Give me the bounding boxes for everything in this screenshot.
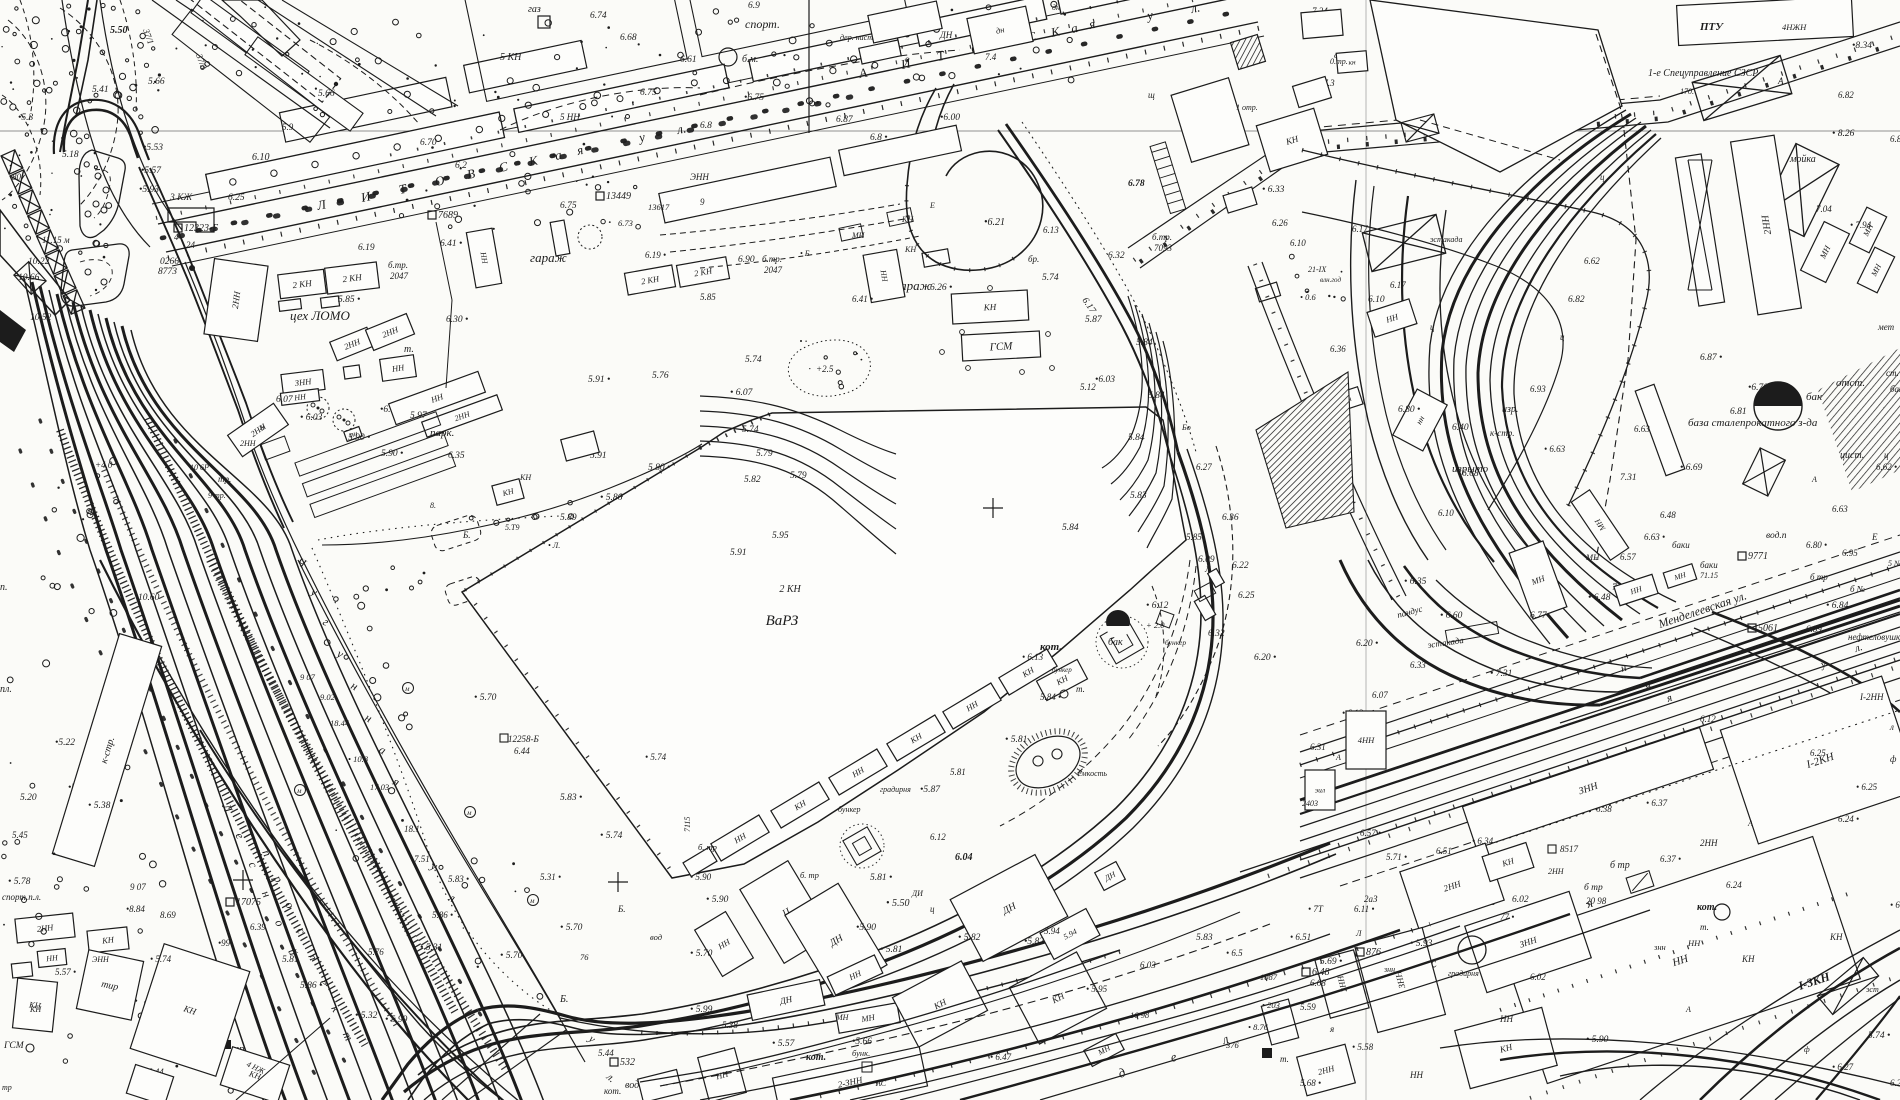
svg-text:Л: Л xyxy=(1355,929,1362,938)
svg-text:13449: 13449 xyxy=(606,191,631,202)
svg-text:тр: тр xyxy=(2,1083,12,1092)
svg-text:6.20 •: 6.20 • xyxy=(1254,653,1276,663)
svg-text:2047: 2047 xyxy=(764,265,783,275)
svg-text:2047: 2047 xyxy=(390,271,409,281)
svg-text:изр.: изр. xyxy=(1502,404,1518,415)
svg-text:10 6Р: 10 6Р xyxy=(190,463,209,472)
svg-text:баки: баки xyxy=(1672,540,1690,550)
svg-text:кот.: кот. xyxy=(806,1052,826,1063)
svg-text:б тр: б тр xyxy=(1810,572,1828,582)
svg-text:м: м xyxy=(529,897,535,905)
svg-text:• 5.82: • 5.82 xyxy=(958,933,981,943)
svg-text:6.10: 6.10 xyxy=(252,152,270,163)
svg-text:• 5.70: • 5.70 xyxy=(474,693,497,703)
svg-text:спорт.: спорт. xyxy=(745,17,780,31)
svg-text:6.75: 6.75 xyxy=(640,88,657,98)
svg-text:6.04: 6.04 xyxy=(955,852,973,863)
svg-text:• 5.70: • 5.70 xyxy=(500,951,523,961)
svg-text:12258-Б: 12258-Б xyxy=(508,734,539,744)
svg-text:12323-Б: 12323-Б xyxy=(184,223,218,234)
svg-text:5.68 •: 5.68 • xyxy=(1300,1078,1321,1088)
svg-text:А: А xyxy=(1747,819,1753,828)
svg-text:8.69: 8.69 xyxy=(160,910,176,920)
svg-text:6.78: 6.78 xyxy=(1128,179,1145,189)
svg-text:• 5.70: • 5.70 xyxy=(560,923,583,933)
svg-text:6.82: 6.82 xyxy=(1838,90,1854,100)
svg-text:6.26 •: 6.26 • xyxy=(930,283,952,293)
svg-text:• 7.94: • 7.94 xyxy=(1850,220,1872,230)
svg-text:6.87 •: 6.87 • xyxy=(1700,353,1722,363)
svg-text:• 6.63: • 6.63 xyxy=(1544,444,1566,454)
svg-text:17075: 17075 xyxy=(236,897,261,908)
svg-text:6.57 •: 6.57 • xyxy=(1360,828,1381,838)
svg-text:5.91: 5.91 xyxy=(730,548,747,558)
svg-text:5.18: 5.18 xyxy=(62,150,79,160)
svg-text:н: н xyxy=(260,422,265,432)
svg-text:база сталепрокатного з-да: база сталепрокатного з-да xyxy=(1688,417,1818,429)
svg-text:6.31: 6.31 xyxy=(1310,742,1326,752)
svg-text:б тр: б тр xyxy=(1584,882,1603,893)
svg-text:ц: ц xyxy=(930,904,935,914)
svg-text:7093: 7093 xyxy=(1154,243,1173,253)
svg-text:•5.3: •5.3 xyxy=(18,113,33,123)
svg-text:5.79: 5.79 xyxy=(756,449,773,459)
svg-text:18.44: 18.44 xyxy=(330,718,350,728)
svg-text:•8.34: •8.34 xyxy=(1852,41,1872,51)
svg-text:м: м xyxy=(404,685,410,693)
svg-text:5.91 •: 5.91 • xyxy=(588,375,610,385)
svg-text:НН: НН xyxy=(390,362,405,374)
svg-text:• 6.69: • 6.69 xyxy=(1680,463,1703,473)
svg-text:9 тр.: 9 тр. xyxy=(208,491,226,500)
svg-text:5 №: 5 № xyxy=(1888,559,1900,568)
svg-text:эстакада: эстакада xyxy=(1430,235,1462,244)
svg-text:• 5.90: • 5.90 xyxy=(706,895,729,905)
svg-text:• 0.6: • 0.6 xyxy=(1300,292,1316,302)
svg-text:6.22: 6.22 xyxy=(1232,561,1249,571)
svg-text:• 7Т: • 7Т xyxy=(1308,904,1324,914)
svg-text:5.80 •: 5.80 • xyxy=(648,463,670,473)
svg-text:• 6.13: • 6.13 xyxy=(1022,652,1044,662)
svg-text:кот.: кот. xyxy=(604,1086,621,1096)
svg-text:5.86 •: 5.86 • xyxy=(432,910,453,920)
svg-text:щ: щ xyxy=(1148,90,1155,100)
svg-text:1-е Спецуправление СЗСР: 1-е Спецуправление СЗСР xyxy=(1648,68,1758,79)
svg-text:ДИ: ДИ xyxy=(911,889,924,898)
svg-text:5 НН: 5 НН xyxy=(560,112,580,122)
svg-text:к-стр.: к-стр. xyxy=(1490,428,1514,438)
svg-text:эст: эст xyxy=(1866,985,1879,994)
svg-text:6.63: 6.63 xyxy=(1832,504,1848,514)
svg-text:• 6.48: • 6.48 xyxy=(1588,593,1611,603)
svg-text:2НН: 2НН xyxy=(36,922,54,934)
svg-text:8.: 8. xyxy=(430,501,436,510)
svg-text:МН: МН xyxy=(1585,552,1600,562)
svg-text:5.74: 5.74 xyxy=(1042,273,1059,283)
svg-text:б №: б № xyxy=(1850,584,1865,594)
svg-text:9 07: 9 07 xyxy=(300,672,316,682)
svg-text:6.02: 6.02 xyxy=(1530,972,1546,982)
svg-text:6.81: 6.81 xyxy=(1730,407,1747,417)
svg-text:6.29: 6.29 xyxy=(1890,1078,1900,1088)
svg-text:6.19: 6.19 xyxy=(358,243,375,253)
svg-text:• 5.86: • 5.86 xyxy=(600,493,623,503)
svg-text:•5.53: •5.53 xyxy=(143,143,163,153)
svg-text:•5.22: •5.22 xyxy=(55,738,75,748)
svg-text:• 5.58: • 5.58 xyxy=(1352,1042,1374,1052)
svg-text:376: 376 xyxy=(1225,1040,1240,1050)
svg-text:ЭНН: ЭНН xyxy=(92,955,110,964)
svg-text:6.12: 6.12 xyxy=(930,832,946,842)
svg-text:Б.: Б. xyxy=(559,994,568,1005)
svg-text:6.07: 6.07 xyxy=(276,395,294,405)
svg-text:5.45: 5.45 xyxy=(12,830,28,840)
svg-text:6.09: 6.09 xyxy=(1198,555,1215,565)
svg-text:10.60: 10.60 xyxy=(138,593,160,603)
svg-text:б. тр: б. тр xyxy=(800,870,819,880)
svg-text:влн.год: влн.год xyxy=(1320,276,1341,284)
svg-text:бр.: бр. xyxy=(1028,254,1039,264)
svg-text:6.41 •: 6.41 • xyxy=(440,239,462,249)
svg-text:б.тр.: б.тр. xyxy=(1152,232,1172,242)
svg-text:2НН: 2НН xyxy=(240,439,257,448)
svg-text:5.84 •: 5.84 • xyxy=(1040,692,1061,702)
svg-text:6.80 •: 6.80 • xyxy=(1398,405,1420,415)
svg-text:6.95: 6.95 xyxy=(1842,548,1858,558)
svg-text:5.81: 5.81 xyxy=(282,955,299,965)
svg-text:• Л.: • Л. xyxy=(548,541,560,550)
svg-text:бак: бак xyxy=(1806,391,1823,403)
svg-text:мет: мет xyxy=(1877,322,1895,332)
svg-text:5.74: 5.74 xyxy=(745,355,762,365)
svg-text:Б.: Б. xyxy=(462,530,471,540)
svg-text:Е: Е xyxy=(929,201,935,210)
svg-text:•5.82: •5.82 xyxy=(1024,937,1044,947)
svg-text:Ε: Ε xyxy=(1871,532,1878,542)
svg-text:• 7.31: • 7.31 xyxy=(1490,669,1512,679)
svg-text:6.57: 6.57 xyxy=(1620,552,1636,562)
svg-text:5.81: 5.81 xyxy=(950,767,966,777)
svg-text:бункер: бункер xyxy=(1052,666,1072,674)
svg-text:ВаРЗ: ВаРЗ xyxy=(766,613,799,629)
svg-text:• 6.25: • 6.25 xyxy=(1856,782,1878,792)
svg-text:ЗНН: ЗНН xyxy=(294,376,312,388)
svg-text:НН: НН xyxy=(45,953,60,963)
svg-text:+4.0: +4.0 xyxy=(95,460,113,470)
svg-text:• 6.07: • 6.07 xyxy=(730,388,754,398)
svg-text:•5.57: •5.57 xyxy=(141,166,162,176)
svg-text:вод.п: вод.п xyxy=(1766,530,1787,541)
svg-text:б тр: б тр xyxy=(1610,860,1630,871)
svg-text:7.51: 7.51 xyxy=(414,854,430,864)
svg-text:5.90 •: 5.90 • xyxy=(348,433,370,443)
svg-text:• 6.37: • 6.37 xyxy=(1646,798,1668,808)
svg-text:•5.90: •5.90 xyxy=(856,923,876,933)
svg-text:• 6.51: • 6.51 xyxy=(1290,932,1311,942)
svg-text:• 5.74: • 5.74 xyxy=(645,752,667,762)
svg-text:бак: бак xyxy=(1890,384,1900,394)
svg-text:КН: КН xyxy=(101,934,116,945)
svg-text:6.10: 6.10 xyxy=(1438,508,1454,518)
svg-text:т.: т. xyxy=(404,344,414,355)
svg-text:6.41 •: 6.41 • xyxy=(852,294,873,304)
svg-text:8773: 8773 xyxy=(158,267,177,277)
svg-text:ц: ц xyxy=(1560,332,1565,342)
svg-text:Бо: Бо xyxy=(1181,423,1191,432)
svg-text:т.: т. xyxy=(1280,1054,1289,1064)
svg-text:6.25: 6.25 xyxy=(1238,591,1255,601)
svg-text:6.12: 6.12 xyxy=(1700,714,1716,724)
svg-text:градирня: градирня xyxy=(880,785,911,794)
svg-text:• 5.70: • 5.70 xyxy=(690,949,713,959)
svg-text:6.51: 6.51 xyxy=(1436,846,1452,856)
svg-text:6.17: 6.17 xyxy=(1390,280,1406,290)
svg-text:• 8.76: • 8.76 xyxy=(1248,1022,1269,1032)
svg-text:• 5.95: • 5.95 xyxy=(1086,984,1108,994)
svg-text:5.85 •: 5.85 • xyxy=(338,295,360,305)
svg-text:6.48: 6.48 xyxy=(1312,967,1330,978)
svg-text:6.10: 6.10 xyxy=(1368,295,1385,305)
svg-text:+2.5: +2.5 xyxy=(816,364,834,374)
svg-text:• 8.26: • 8.26 xyxy=(1832,129,1855,139)
svg-text:• 5.93: • 5.93 xyxy=(1410,939,1433,949)
svg-text:1087: 1087 xyxy=(1260,972,1278,982)
svg-text:пл.: пл. xyxy=(0,684,12,695)
svg-text:ф: ф xyxy=(1804,1045,1810,1054)
svg-text:5.83 •: 5.83 • xyxy=(448,874,469,884)
svg-text:5.97: 5.97 xyxy=(410,411,428,421)
svg-text:6.77: 6.77 xyxy=(1530,611,1548,621)
svg-text:9 07: 9 07 xyxy=(130,882,146,892)
svg-text:5.41: 5.41 xyxy=(92,85,109,95)
svg-text:я: я xyxy=(1329,1024,1334,1034)
svg-text:кот.: кот. xyxy=(1040,641,1062,653)
svg-text:24: 24 xyxy=(186,240,196,250)
svg-text:• 5.74: • 5.74 xyxy=(150,954,172,964)
svg-text:5.76: 5.76 xyxy=(652,371,669,381)
svg-text:6.62: 6.62 xyxy=(1584,256,1600,266)
svg-text:•8.84: •8.84 xyxy=(126,904,145,914)
svg-text:6.35: 6.35 xyxy=(448,451,465,461)
svg-text:2НН: 2НН xyxy=(1548,867,1565,876)
svg-text:6.8: 6.8 xyxy=(700,121,712,131)
svg-text:2аЗ: 2аЗ xyxy=(1364,894,1378,904)
svg-text:МН: МН xyxy=(835,1013,850,1022)
svg-text:бак: бак xyxy=(1108,637,1123,648)
svg-text:эил: эил xyxy=(1315,786,1325,795)
svg-text:5.Т9: 5.Т9 xyxy=(505,523,519,532)
svg-text:20 98: 20 98 xyxy=(1586,896,1607,906)
svg-text:6.20 •: 6.20 • xyxy=(1356,639,1378,649)
svg-text:• 6.33: • 6.33 xyxy=(1262,185,1285,195)
svg-text:ц: ц xyxy=(1430,322,1435,332)
svg-text:8517: 8517 xyxy=(1560,844,1579,854)
svg-text:6.87: 6.87 xyxy=(836,115,854,125)
svg-text:отст.: отст. xyxy=(1836,377,1865,389)
svg-text:18.1: 18.1 xyxy=(404,824,420,834)
svg-text:71.15: 71.15 xyxy=(1700,571,1718,580)
svg-text:кн: кн xyxy=(1348,57,1356,67)
svg-text:5.12: 5.12 xyxy=(1080,382,1096,392)
svg-text:13617: 13617 xyxy=(648,202,670,212)
svg-text:6.74: 6.74 xyxy=(590,11,607,21)
svg-text:• 6.03: • 6.03 xyxy=(300,413,323,423)
svg-text:5.85: 5.85 xyxy=(700,292,716,302)
svg-text:9771: 9771 xyxy=(1748,551,1768,562)
svg-text:6.62 •: 6.62 • xyxy=(1876,462,1897,472)
svg-text:в: в xyxy=(905,54,909,64)
svg-text:КН: КН xyxy=(519,473,532,482)
svg-text:6.13: 6.13 xyxy=(1043,225,1059,235)
svg-text:0.тр.: 0.тр. xyxy=(1330,57,1348,66)
svg-text:6.30 •: 6.30 • xyxy=(446,315,468,325)
svg-text:А: А xyxy=(1777,76,1784,86)
svg-text:бункер: бункер xyxy=(838,805,861,814)
svg-text:5.83 •: 5.83 • xyxy=(560,793,582,803)
svg-text:НН: НН xyxy=(1499,1014,1513,1024)
svg-text:6.82: 6.82 xyxy=(1890,134,1900,144)
svg-text:17.03: 17.03 xyxy=(370,782,389,792)
svg-text:5.85: 5.85 xyxy=(1186,532,1202,542)
svg-text:6.73: 6.73 xyxy=(618,218,633,228)
svg-text:76: 76 xyxy=(580,952,589,962)
svg-text:• 5.31: • 5.31 xyxy=(420,943,442,953)
svg-text:6.25: 6.25 xyxy=(1810,748,1826,758)
svg-text:1 отр.: 1 отр. xyxy=(1236,103,1258,112)
svg-text:ГСМ: ГСМ xyxy=(3,1041,25,1051)
svg-text:знн: знн xyxy=(1653,942,1666,952)
svg-text:• 5.50: • 5.50 xyxy=(886,898,910,909)
svg-text:тр.: тр. xyxy=(218,474,231,484)
svg-text:•6.21: •6.21 xyxy=(984,217,1005,228)
svg-text:21-IХ: 21-IХ xyxy=(1308,265,1327,274)
svg-text:• 6.34: • 6.34 xyxy=(1472,836,1494,846)
svg-text:Л: Л xyxy=(1204,565,1211,574)
svg-text:А: А xyxy=(1811,475,1817,484)
svg-text:•5.93: •5.93 xyxy=(139,185,159,195)
svg-text:баки: баки xyxy=(1700,560,1718,570)
svg-text:6.32: 6.32 xyxy=(1108,251,1125,261)
svg-text:• 5.90: • 5.90 xyxy=(690,872,712,882)
svg-text:5.31 •: 5.31 • xyxy=(540,872,561,882)
svg-text:7.4: 7.4 xyxy=(985,52,997,62)
svg-text:6.82: 6.82 xyxy=(1568,295,1585,305)
svg-text:6.9: 6.9 xyxy=(748,1,760,11)
svg-text:•6.00: •6.00 xyxy=(940,113,960,123)
svg-text:6.24 •: 6.24 • xyxy=(1838,814,1859,824)
svg-text:5.69 •: 5.69 • xyxy=(1320,957,1342,967)
svg-text:А: А xyxy=(1335,753,1341,762)
svg-text:• 6.35: • 6.35 xyxy=(1404,577,1427,587)
svg-text:б.м.: б.м. xyxy=(742,54,758,65)
svg-text:876: 876 xyxy=(1366,947,1381,958)
svg-text:5 КН: 5 КН xyxy=(500,52,522,63)
svg-text:•: • xyxy=(585,180,588,190)
svg-text:4НЖН: 4НЖН xyxy=(1782,22,1807,32)
svg-text:6.25: 6.25 xyxy=(228,193,245,203)
svg-text:5.81 •: 5.81 • xyxy=(870,873,892,883)
svg-text:ПТУ: ПТУ xyxy=(1699,21,1724,33)
svg-text:• 6.5: • 6.5 xyxy=(1226,948,1243,958)
svg-text:ц: ц xyxy=(1600,172,1605,182)
svg-text:Б.: Б. xyxy=(617,904,626,914)
svg-text:5.50: 5.50 xyxy=(110,25,128,36)
svg-text:• 6.47: • 6.47 xyxy=(990,1052,1012,1062)
svg-text:ЭНН: ЭНН xyxy=(690,172,709,182)
svg-text:•99: •99 xyxy=(218,938,231,948)
svg-text:ДН: ДН xyxy=(939,30,953,40)
svg-text:6.03: 6.03 xyxy=(1140,960,1156,970)
svg-text:б.тр.: б.тр. xyxy=(762,254,782,264)
svg-text:6.61: 6.61 xyxy=(680,55,697,65)
svg-text:5.89: 5.89 xyxy=(560,513,577,523)
svg-text:м: м xyxy=(466,809,472,817)
svg-text:6.32: 6.32 xyxy=(1208,629,1225,639)
svg-text:6.63 •: 6.63 • xyxy=(1644,532,1665,542)
svg-text:0266: 0266 xyxy=(160,257,179,267)
svg-text:п.: п. xyxy=(0,582,8,593)
svg-text:7115: 7115 xyxy=(683,817,692,832)
svg-text:нефтеловушка: нефтеловушка xyxy=(1848,632,1900,642)
svg-text:5.87: 5.87 xyxy=(1085,315,1103,325)
svg-text:• 5.99: • 5.99 xyxy=(385,1015,408,1025)
svg-text:КН: КН xyxy=(904,245,917,254)
svg-text:5.83: 5.83 xyxy=(1196,933,1213,943)
svg-text:м: м xyxy=(296,787,302,795)
svg-text:•6.03: •6.03 xyxy=(1095,375,1115,385)
svg-text:ГСМ: ГСМ xyxy=(988,340,1013,353)
svg-text:6.10: 6.10 xyxy=(1290,238,1306,248)
svg-text:• 5.38: • 5.38 xyxy=(88,801,111,811)
svg-text:5.38: 5.38 xyxy=(722,1020,738,1030)
svg-text:т.: т. xyxy=(1076,684,1085,694)
svg-text:5.9: 5.9 xyxy=(282,122,294,132)
svg-text:• 10.8: • 10.8 xyxy=(348,754,369,764)
svg-text:• 6.31: • 6.31 xyxy=(1890,900,1900,910)
svg-text:ст.: ст. xyxy=(1886,368,1899,378)
svg-text:мойка: мойка xyxy=(1789,154,1816,165)
svg-text:цех ЛОМО: цех ЛОМО xyxy=(290,308,350,323)
svg-text:5.83: 5.83 xyxy=(1130,491,1147,501)
svg-text:цист.: цист. xyxy=(1840,450,1864,461)
svg-text:б. тр: б. тр xyxy=(698,842,717,852)
svg-text:• 5.81: • 5.81 xyxy=(880,945,902,955)
svg-text:изрыто: изрыто xyxy=(1452,463,1489,475)
svg-text:•5.87: •5.87 xyxy=(920,785,941,795)
svg-text:НН: НН xyxy=(1409,1070,1423,1080)
svg-text:6.75: 6.75 xyxy=(560,201,577,211)
svg-text:б.тр.: б.тр. xyxy=(388,260,408,270)
svg-text:• 203: • 203 xyxy=(1262,1000,1280,1010)
svg-text:6.90: 6.90 xyxy=(738,255,755,265)
svg-text:5.76: 5.76 xyxy=(368,947,384,957)
svg-text:4: 4 xyxy=(174,232,179,242)
svg-text:ёмкость: ёмкость xyxy=(1078,769,1107,778)
svg-text:6.37 •: 6.37 • xyxy=(1660,854,1681,864)
svg-text:КН: КН xyxy=(1741,954,1755,964)
svg-text:бунк.: бунк. xyxy=(852,1048,870,1058)
svg-text:6.11 •: 6.11 • xyxy=(1354,904,1374,914)
svg-text:5.94: 5.94 xyxy=(1044,926,1060,936)
svg-text:НН: НН xyxy=(293,392,308,403)
svg-text:5.74: 5.74 xyxy=(742,425,759,435)
svg-text:7.31: 7.31 xyxy=(1620,473,1637,483)
svg-text:2403: 2403 xyxy=(1302,799,1318,808)
svg-text:9: 9 xyxy=(700,197,705,207)
svg-text:5.20: 5.20 xyxy=(20,793,37,803)
svg-text:3 КЖ: 3 КЖ xyxy=(169,193,193,203)
svg-text:5.84: 5.84 xyxy=(1062,523,1079,533)
